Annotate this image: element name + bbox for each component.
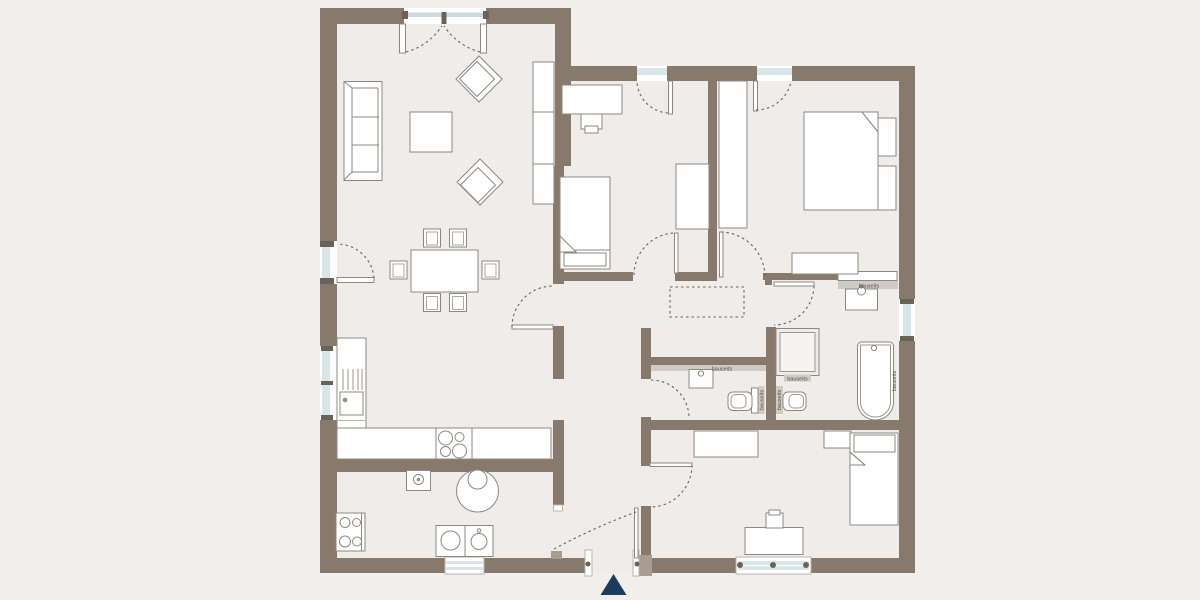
svg-text:bauseits: bauseits bbox=[859, 284, 880, 290]
svg-text:bauseits: bauseits bbox=[712, 367, 733, 373]
svg-text:bauseits: bauseits bbox=[892, 371, 898, 392]
svg-text:bauseits: bauseits bbox=[760, 390, 766, 411]
svg-text:bauseits: bauseits bbox=[787, 377, 808, 383]
svg-text:bauseits: bauseits bbox=[777, 390, 783, 411]
